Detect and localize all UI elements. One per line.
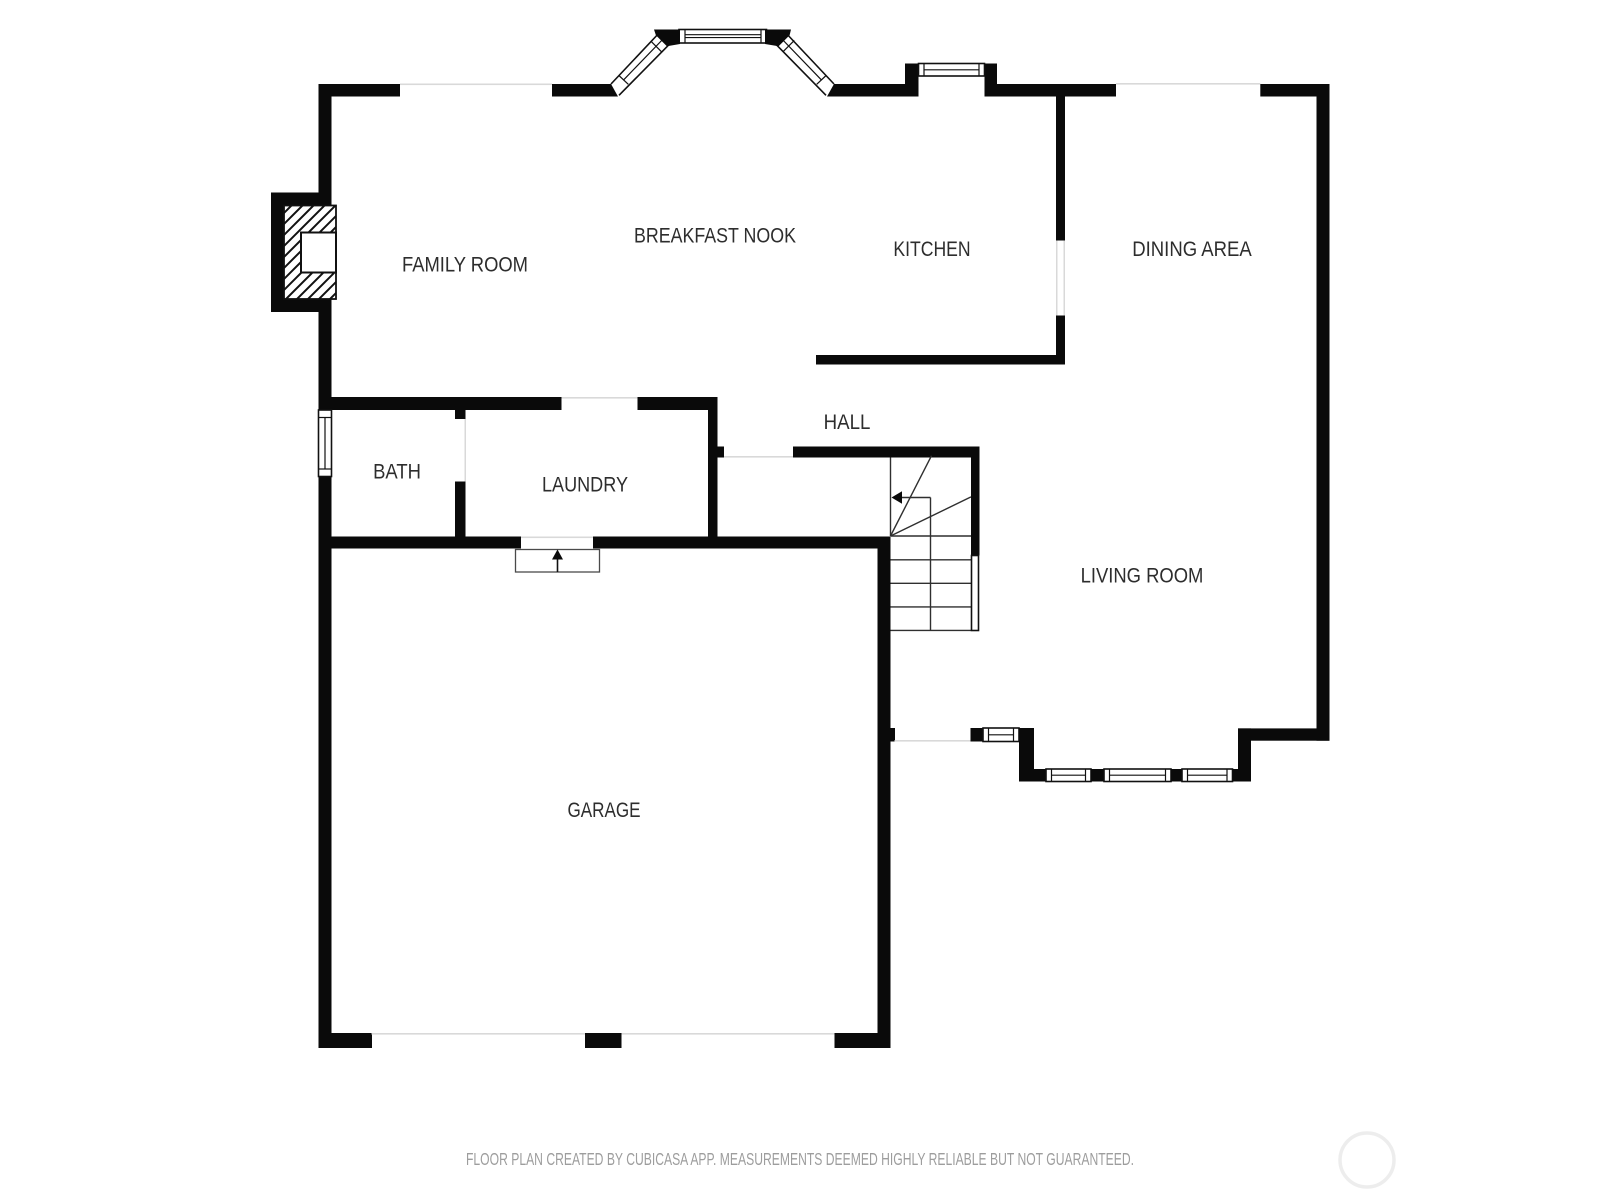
svg-text:LAUNDRY: LAUNDRY xyxy=(542,474,628,497)
svg-text:BATH: BATH xyxy=(373,460,421,483)
svg-text:FLOOR PLAN CREATED BY CUBICASA: FLOOR PLAN CREATED BY CUBICASA APP. MEAS… xyxy=(466,1149,1134,1169)
svg-text:FAMILY ROOM: FAMILY ROOM xyxy=(402,254,528,277)
svg-text:KITCHEN: KITCHEN xyxy=(893,238,970,261)
svg-text:HALL: HALL xyxy=(824,411,871,434)
svg-text:LIVING ROOM: LIVING ROOM xyxy=(1081,565,1204,588)
svg-text:DINING AREA: DINING AREA xyxy=(1132,238,1252,261)
svg-text:GARAGE: GARAGE xyxy=(567,799,640,822)
svg-text:BREAKFAST NOOK: BREAKFAST NOOK xyxy=(634,225,796,248)
